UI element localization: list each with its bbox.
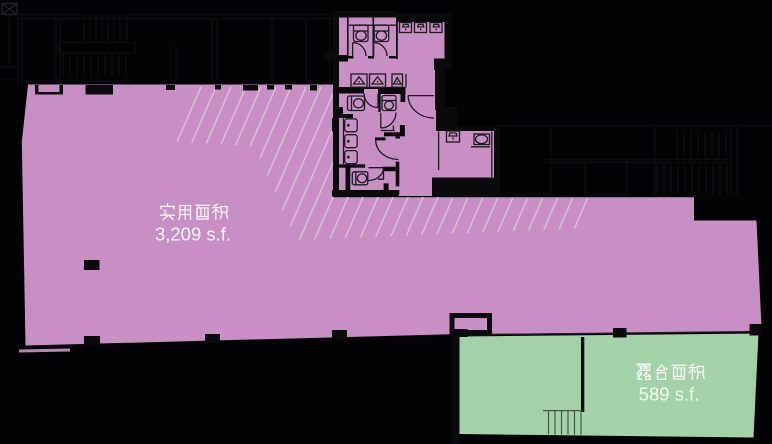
svg-text:3,209 s.f.: 3,209 s.f.: [155, 224, 231, 245]
svg-text:589 s.f.: 589 s.f.: [639, 384, 700, 405]
